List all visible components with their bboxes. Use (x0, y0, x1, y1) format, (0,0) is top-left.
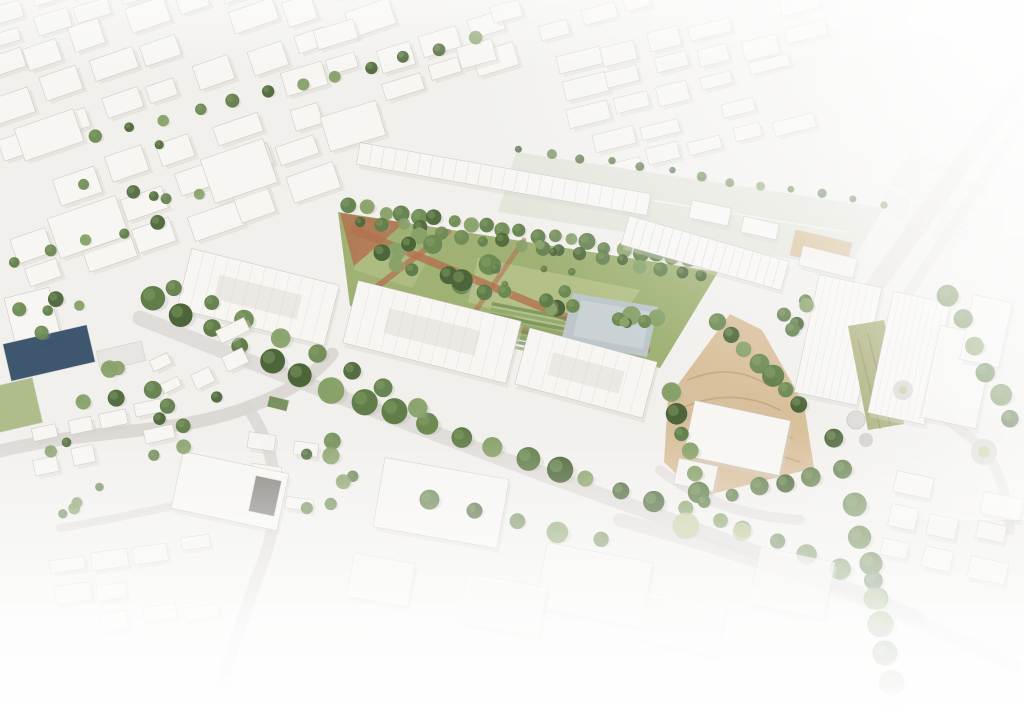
aerial-masterplan-rendering (0, 0, 1024, 716)
haze-bottom (0, 0, 1024, 716)
scene-canvas (0, 0, 1024, 716)
